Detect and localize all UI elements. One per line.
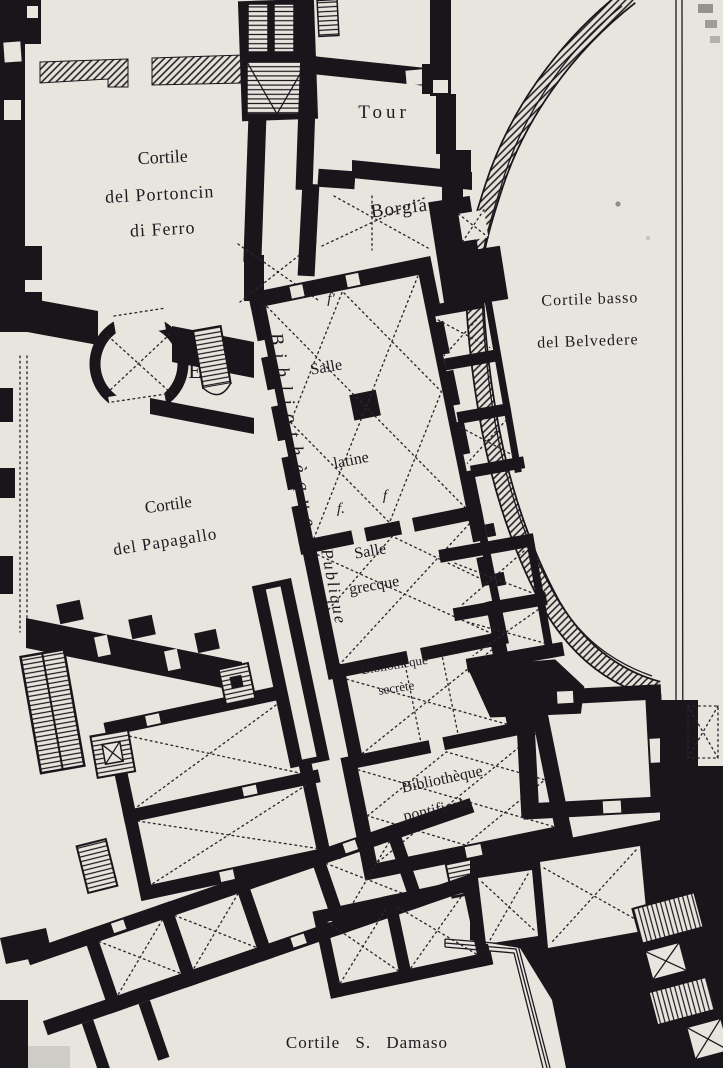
label-borgia: Borgia (370, 195, 430, 223)
label-bibliotheque-secrete-2: secrète (377, 677, 415, 697)
label-f-top-right: f' (327, 291, 335, 307)
label-cortile-portoncin-1: Cortile (137, 146, 188, 169)
label-cortile-portoncin-3: di Ferro (129, 217, 195, 240)
label-salle-latine-1: Salle (309, 356, 343, 378)
label-cortile-damaso: Cortile S. Damaso (286, 1033, 448, 1052)
staircase-glyph-small (77, 839, 118, 893)
label-salle-latine-2: latine (332, 449, 370, 472)
scanned-floor-plan-page: Cortiledel Portoncindi FerroTourBorgiaCo… (0, 0, 723, 1068)
label-f-mid-right: f (383, 488, 389, 504)
label-f-mid-left: f. (337, 501, 345, 517)
staircase-glyph-long (21, 649, 85, 773)
label-bibliotheque-pontificale-1: Bibliothèque (400, 763, 484, 797)
label-cortile-portoncin-2: del Portoncin (104, 181, 214, 207)
mid-south-rooms (313, 877, 494, 999)
staircase-glyph-newel (219, 663, 256, 704)
label-cortile-basso-1: Cortile basso (541, 289, 639, 309)
label-cortile-papagallo-2: del Papagallo (112, 524, 219, 559)
label-cortile-papagallo-1: Cortile (144, 492, 193, 517)
floor-plan: Cortiledel Portoncindi FerroTourBorgiaCo… (0, 0, 723, 1068)
exedra-foot-room (515, 684, 669, 820)
damaso-wing (19, 797, 521, 1068)
staircase-glyph-square (90, 730, 135, 778)
label-salle-grecque-1: Salle (353, 540, 387, 562)
scan-specks (615, 4, 720, 240)
label-stair-e: E (188, 358, 201, 383)
label-cortile-basso-2: del Belvedere (537, 331, 639, 352)
southeast-block (470, 700, 723, 1068)
papagallo-walls (0, 293, 254, 692)
label-tour: Tour (358, 102, 410, 123)
label-salle-grecque-2: grecque (348, 573, 401, 599)
